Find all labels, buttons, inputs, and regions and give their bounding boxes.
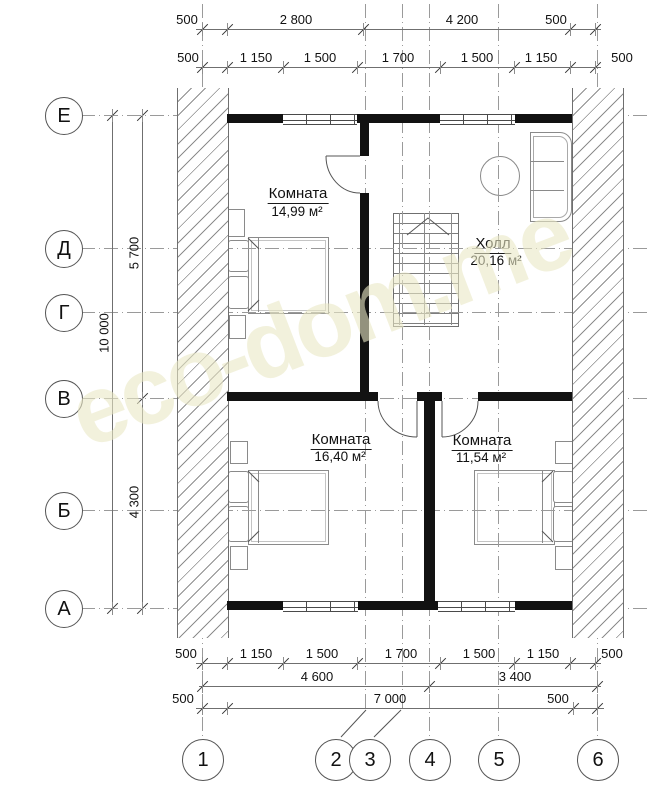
wall-segment — [360, 193, 369, 393]
axis-circle-D: Д — [45, 230, 83, 268]
axis-label: 4 — [424, 749, 435, 772]
hatched-wall-right — [572, 88, 624, 638]
bed-fold — [542, 531, 553, 542]
axis-label: В — [57, 388, 70, 411]
dim-label: 4 300 — [127, 486, 142, 519]
wall-segment — [227, 392, 378, 401]
dimension-line — [196, 67, 601, 68]
axis-leader-3 — [374, 710, 401, 737]
dim-label: 500 — [601, 646, 623, 661]
wall-segment — [357, 114, 440, 123]
axis-circle-1: 1 — [182, 739, 224, 781]
axis-circle-B: Б — [45, 492, 83, 530]
dim-label: 1 500 — [306, 646, 339, 661]
dim-label: 1 500 — [461, 50, 494, 65]
dimension-line — [196, 29, 601, 30]
bed-fold — [542, 471, 553, 482]
window — [283, 601, 358, 612]
dim-label: 3 400 — [499, 669, 532, 684]
room-area: 16,40 м² — [314, 449, 365, 464]
wall-segment — [227, 601, 283, 610]
dim-label: 10 000 — [97, 313, 112, 353]
dim-label: 500 — [547, 691, 569, 706]
axis-label: 3 — [364, 749, 375, 772]
axis-circle-A: А — [45, 590, 83, 628]
wall-segment — [227, 114, 283, 123]
dim-label: 2 800 — [280, 12, 313, 27]
dim-label: 1 150 — [527, 646, 560, 661]
dim-label: 500 — [175, 646, 197, 661]
wall-segment — [358, 601, 438, 610]
room-name: Комната — [311, 431, 372, 450]
wall-segment — [515, 601, 572, 610]
axis-circle-E: Е — [45, 97, 83, 135]
dim-label: 1 700 — [382, 50, 415, 65]
dim-label: 500 — [177, 50, 199, 65]
dim-label: 1 150 — [240, 50, 273, 65]
room-area: 20,16 м² — [470, 253, 521, 268]
axis-circle-3: 3 — [349, 739, 391, 781]
dimension-line — [199, 686, 601, 687]
dim-label: 1 150 — [240, 646, 273, 661]
dimension-line — [112, 110, 113, 614]
axis-label: 1 — [197, 749, 208, 772]
wall-segment — [417, 392, 442, 401]
bed-fold — [248, 531, 259, 542]
hatched-wall-left — [177, 88, 229, 638]
stair-direction-arrow — [407, 218, 449, 235]
dim-label: 1 150 — [525, 50, 558, 65]
wall-segment — [360, 123, 369, 156]
axis-label: Д — [57, 238, 71, 261]
grid-line-axis-B — [81, 510, 648, 511]
axis-label: А — [57, 598, 70, 621]
dim-label: 500 — [176, 12, 198, 27]
bed-fold — [248, 300, 259, 311]
dim-label: 500 — [611, 50, 633, 65]
dim-label: 1 500 — [304, 50, 337, 65]
axis-leader-2 — [341, 710, 366, 737]
axis-label: 5 — [493, 749, 504, 772]
dim-label: 1 700 — [385, 646, 418, 661]
dimension-line — [142, 110, 143, 614]
dim-label: 500 — [172, 691, 194, 706]
dimension-line — [196, 663, 601, 664]
dim-label: 5 700 — [127, 237, 142, 270]
floor-plan-page: eco-dom.me — [0, 0, 650, 800]
axis-circle-4: 4 — [409, 739, 451, 781]
door-arc — [378, 401, 417, 437]
axis-circle-G: Г — [45, 294, 83, 332]
dim-label: 4 600 — [301, 669, 334, 684]
door-arc — [326, 156, 360, 193]
axis-label: Г — [59, 302, 70, 325]
window — [283, 114, 357, 125]
axis-circle-6: 6 — [577, 739, 619, 781]
dim-label: 7 000 — [374, 691, 407, 706]
dim-label: 500 — [545, 12, 567, 27]
dim-label: 1 500 — [463, 646, 496, 661]
wall-segment — [515, 114, 572, 123]
room-area: 11,54 м² — [456, 450, 506, 465]
room-name: Холл — [474, 235, 511, 254]
bed-fold — [248, 471, 259, 482]
wall-segment — [424, 401, 435, 601]
window — [438, 601, 515, 612]
axis-circle-V: В — [45, 380, 83, 418]
dim-label: 4 200 — [446, 12, 479, 27]
axis-label: Е — [57, 105, 70, 128]
axis-label: 6 — [592, 749, 603, 772]
axis-circle-5: 5 — [478, 739, 520, 781]
window — [440, 114, 515, 125]
axis-label: Б — [57, 500, 70, 523]
wall-segment — [478, 392, 572, 401]
room-name: Комната — [452, 432, 513, 451]
axis-label: 2 — [330, 749, 341, 772]
room-name: Комната — [268, 185, 329, 204]
dimension-line — [196, 708, 604, 709]
room-area: 14,99 м² — [271, 204, 322, 219]
